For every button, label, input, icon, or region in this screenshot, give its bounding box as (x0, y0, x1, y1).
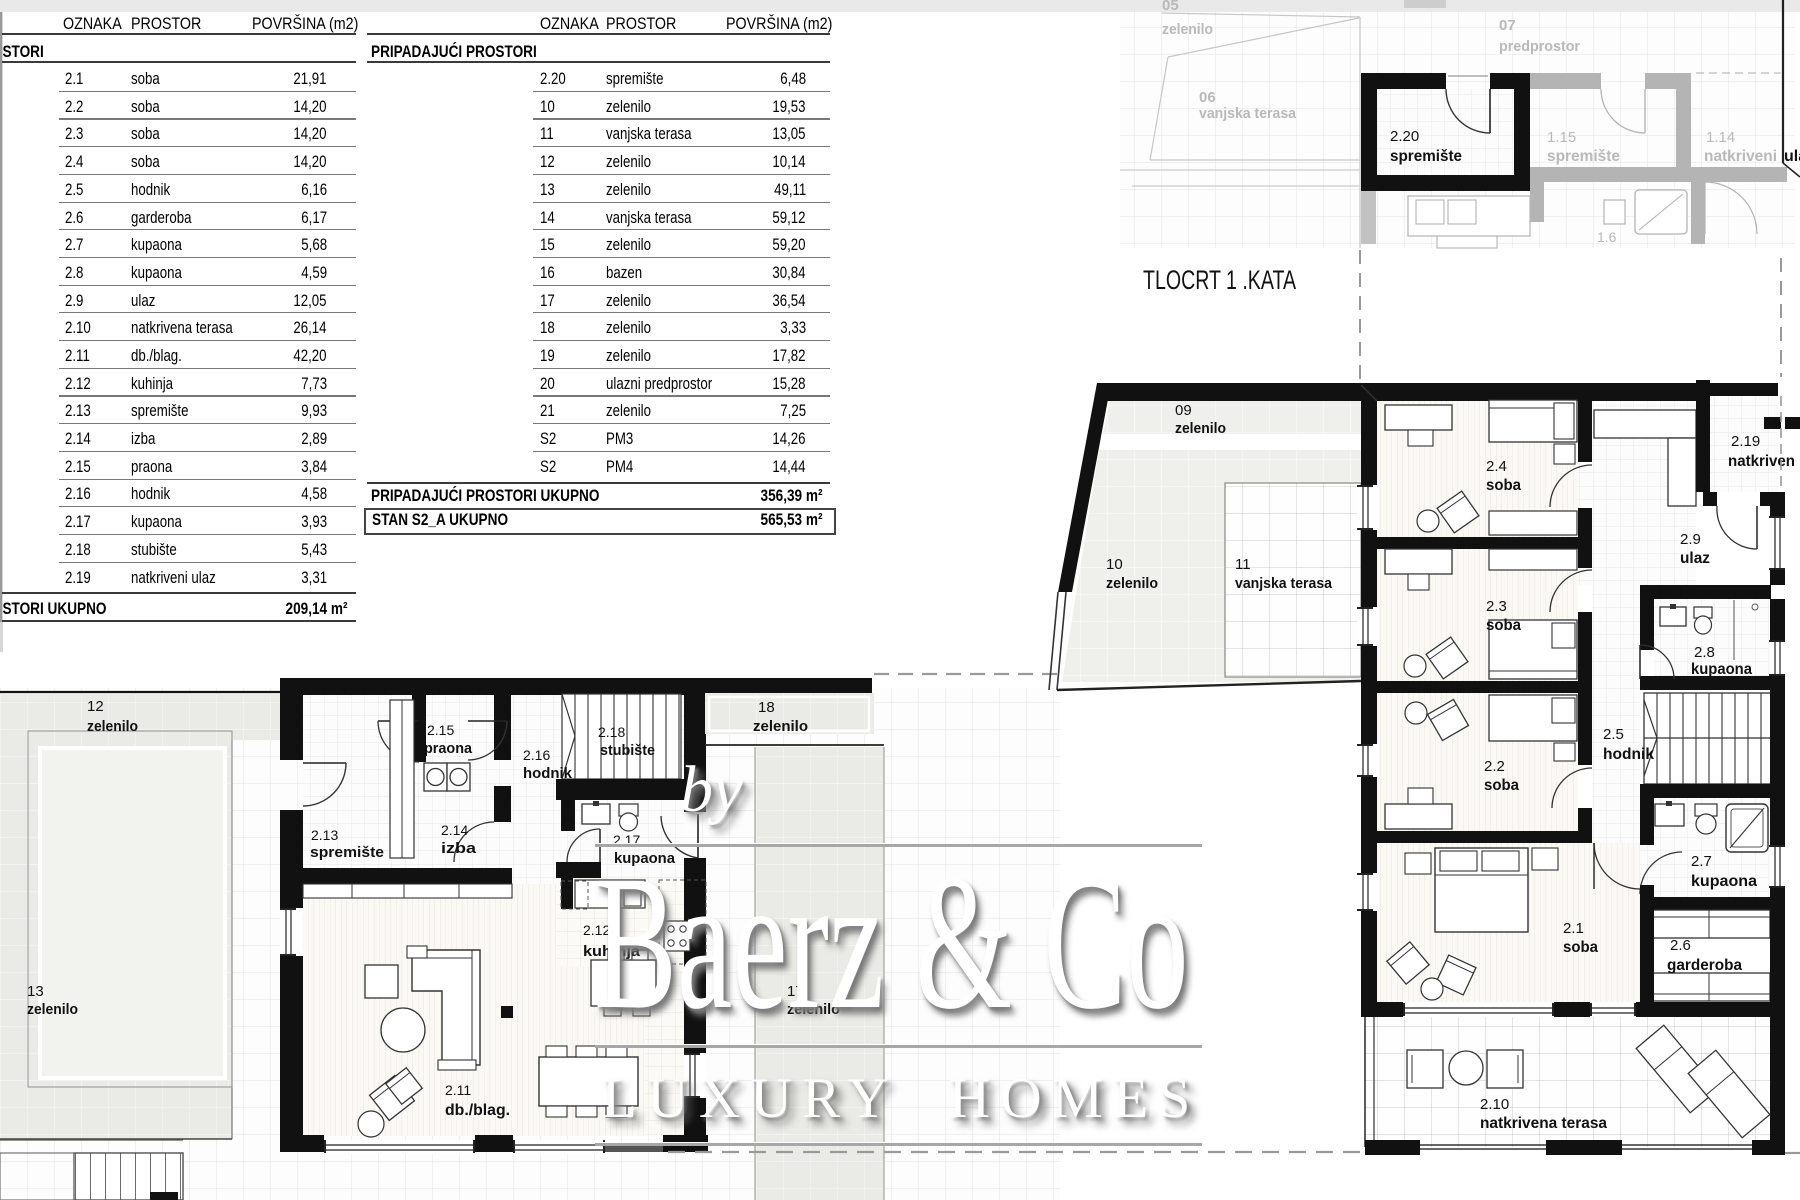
svg-text:praona: praona (424, 740, 473, 757)
svg-text:2.2: 2.2 (1484, 758, 1505, 775)
svg-text:vanjska terasa: vanjska terasa (1235, 575, 1333, 592)
svg-text:2.11: 2.11 (445, 1082, 471, 1098)
svg-text:TLOCRT 1 .KATA: TLOCRT 1 .KATA (1143, 265, 1296, 295)
svg-text:18: 18 (758, 699, 775, 716)
svg-text:2.13: 2.13 (311, 827, 338, 843)
svg-text:09: 09 (1175, 402, 1192, 419)
svg-text:1.6: 1.6 (1597, 229, 1617, 245)
svg-text:kupaona: kupaona (1691, 873, 1757, 890)
svg-text:2.1: 2.1 (1563, 920, 1584, 937)
svg-text:10: 10 (1106, 556, 1123, 573)
svg-text:natkrivena terasa: natkrivena terasa (1480, 1115, 1607, 1132)
svg-text:zelenilo: zelenilo (1175, 420, 1226, 437)
svg-text:zelenilo: zelenilo (753, 718, 808, 735)
svg-text:2.20: 2.20 (1390, 128, 1419, 145)
svg-text:natkriven: natkriven (1728, 453, 1795, 470)
svg-text:2.14: 2.14 (441, 822, 468, 838)
svg-text:2.3: 2.3 (1486, 598, 1507, 615)
svg-text:izba: izba (441, 840, 477, 857)
svg-text:2.18: 2.18 (598, 724, 625, 740)
svg-text:12: 12 (87, 698, 104, 715)
svg-text:2.5: 2.5 (1603, 726, 1624, 743)
svg-text:hodnik: hodnik (523, 765, 573, 782)
svg-text:kupaona: kupaona (1691, 661, 1752, 678)
svg-text:2.7: 2.7 (1691, 853, 1712, 870)
svg-text:2.19: 2.19 (1731, 433, 1760, 450)
svg-text:2.8: 2.8 (1694, 644, 1715, 661)
svg-text:11: 11 (1235, 556, 1251, 573)
svg-text:zelenilo: zelenilo (87, 718, 138, 735)
svg-text:ulaz: ulaz (1680, 550, 1710, 567)
svg-text:natkriveni: natkriveni (1704, 148, 1777, 165)
svg-text:db./blag.: db./blag. (445, 1102, 510, 1119)
svg-text:ula: ula (1784, 148, 1800, 165)
svg-text:soba: soba (1563, 939, 1598, 956)
svg-text:spremište: spremište (1547, 148, 1620, 165)
svg-text:spremište: spremište (1390, 148, 1462, 165)
svg-text:1.14: 1.14 (1706, 129, 1735, 146)
svg-text:hodnik: hodnik (1603, 746, 1654, 763)
svg-text:spremište: spremište (310, 844, 384, 861)
svg-text:2.4: 2.4 (1486, 458, 1507, 475)
svg-text:2.10: 2.10 (1480, 1096, 1509, 1113)
svg-text:06: 06 (1199, 89, 1216, 106)
svg-text:2.9: 2.9 (1680, 531, 1701, 548)
svg-text:zelenilo: zelenilo (1106, 575, 1158, 592)
svg-text:zelenilo: zelenilo (1162, 21, 1213, 38)
svg-text:soba: soba (1486, 477, 1521, 494)
svg-text:predprostor: predprostor (1499, 38, 1580, 55)
svg-text:2.15: 2.15 (427, 722, 454, 738)
svg-text:garderoba: garderoba (1667, 957, 1742, 974)
svg-text:2.6: 2.6 (1670, 937, 1691, 954)
svg-text:05: 05 (1162, 0, 1179, 14)
svg-text:zelenilo: zelenilo (27, 1001, 78, 1018)
svg-text:stubište: stubište (600, 742, 655, 759)
svg-text:07: 07 (1499, 17, 1516, 34)
svg-text:1.15: 1.15 (1547, 129, 1576, 146)
svg-text:13: 13 (27, 983, 44, 1000)
svg-text:2.16: 2.16 (523, 747, 550, 763)
svg-text:soba: soba (1484, 777, 1519, 794)
svg-text:soba: soba (1486, 617, 1521, 634)
svg-text:vanjska terasa: vanjska terasa (1199, 105, 1297, 122)
